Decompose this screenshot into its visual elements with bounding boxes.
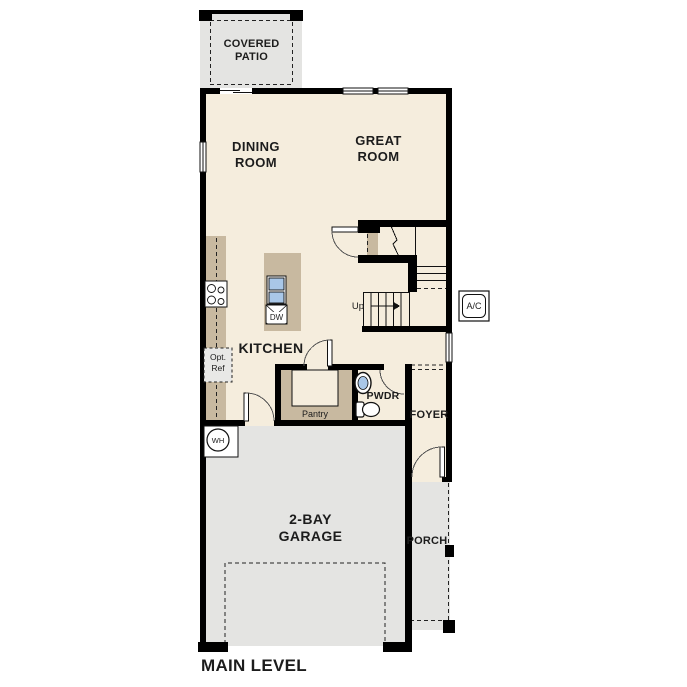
powder-sink-basin	[358, 377, 368, 390]
room-label-dining-room: DINING ROOM	[206, 139, 306, 171]
room-label-porch: PORCH	[406, 535, 448, 548]
sink-basin	[269, 292, 284, 303]
pantry-door-leaf	[328, 340, 333, 366]
patio-beam	[199, 10, 303, 14]
garage-entry-door-leaf	[244, 393, 249, 421]
burner-icon	[218, 287, 224, 293]
closet-door-leaf	[332, 227, 358, 232]
room-label-powder: PWDR	[362, 390, 404, 402]
floor-plan-drawing	[0, 0, 687, 687]
garage-door-opening	[245, 420, 274, 426]
room-label-garage: 2-BAY GARAGE	[261, 511, 360, 545]
floor-plan: COVERED PATIO DINING ROOM GREAT ROOM KIT…	[0, 0, 687, 687]
wall-closet-stub	[358, 227, 380, 233]
fixture-label-ac: A/C	[459, 301, 489, 312]
stairs-up-label: Up	[349, 301, 367, 312]
wall-garage-bottom	[198, 642, 228, 652]
sink-basin	[269, 278, 284, 290]
wall-garage-bottom	[383, 642, 412, 652]
patio-post	[199, 10, 212, 21]
wall-garage-top	[200, 420, 412, 426]
pantry-inset	[292, 370, 338, 406]
burner-icon	[208, 296, 216, 304]
room-label-pantry: Pantry	[285, 409, 345, 420]
burner-icon	[218, 299, 224, 305]
room-label-foyer: FOYER	[408, 409, 450, 422]
wall-greatroom-stairs	[358, 220, 452, 227]
front-door-leaf	[440, 447, 445, 477]
fixture-label-water-heater: WH	[207, 435, 229, 446]
porch-post	[443, 620, 455, 633]
wall-pantry-top	[275, 364, 307, 370]
wall-stair-bottom	[362, 326, 446, 332]
porch-area	[408, 482, 450, 630]
toilet-bowl-icon	[363, 403, 380, 417]
room-label-great-room: GREAT ROOM	[329, 133, 428, 165]
wall-pantry-left	[275, 364, 281, 426]
wall-right	[446, 88, 452, 482]
burner-icon	[208, 285, 216, 293]
fixture-label-opt-ref: Opt. Ref	[204, 352, 232, 374]
room-label-covered-patio: COVERED PATIO	[201, 38, 302, 64]
front-door-opening	[412, 477, 442, 482]
plan-title: MAIN LEVEL	[201, 656, 341, 676]
wall-stair-landing	[408, 255, 417, 292]
wall-garage-right	[405, 364, 412, 651]
room-label-kitchen: KITCHEN	[222, 340, 320, 357]
patio-post	[290, 10, 303, 21]
fixture-label-dishwasher: DW	[267, 312, 286, 323]
